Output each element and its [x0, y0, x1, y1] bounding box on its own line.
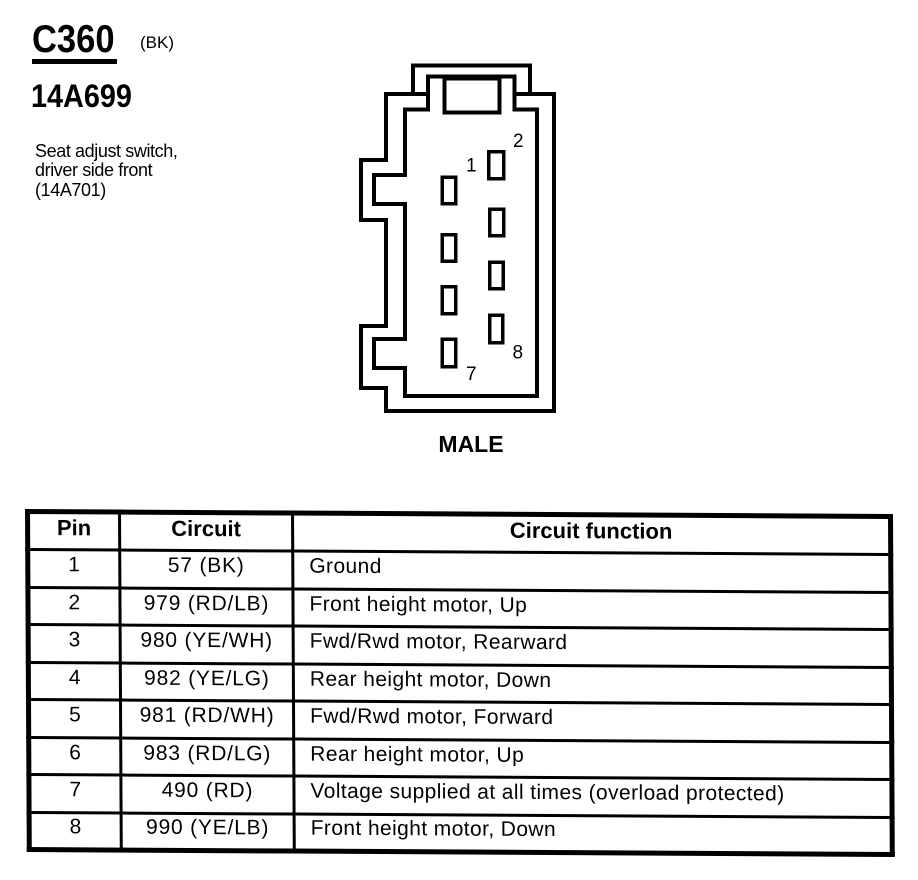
svg-text:7: 7 [466, 364, 477, 385]
svg-text:2: 2 [513, 131, 524, 152]
svg-text:1: 1 [466, 156, 477, 177]
svg-text:8: 8 [513, 343, 524, 364]
